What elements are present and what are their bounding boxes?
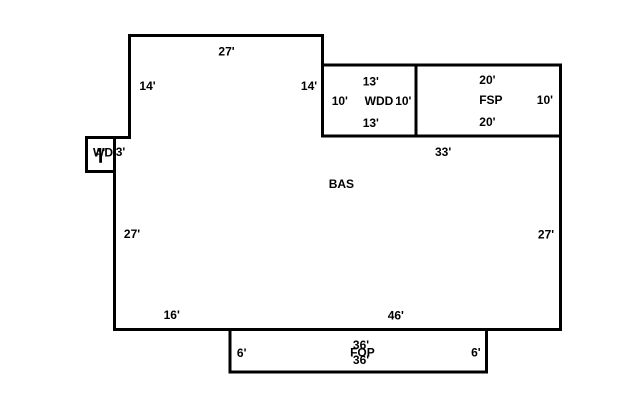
svg-text:13': 13' — [363, 116, 379, 130]
svg-text:10': 10' — [537, 93, 553, 107]
svg-text:27': 27' — [538, 228, 554, 242]
svg-text:WDD: WDD — [365, 94, 394, 108]
svg-text:27': 27' — [124, 227, 140, 241]
svg-text:FSP: FSP — [479, 93, 502, 107]
svg-text:3': 3' — [116, 145, 126, 159]
svg-text:16': 16' — [164, 308, 180, 322]
svg-text:6': 6' — [237, 346, 247, 360]
svg-text:6': 6' — [471, 346, 481, 360]
svg-text:WD: WD — [93, 145, 113, 159]
svg-text:33': 33' — [435, 145, 451, 159]
svg-text:13': 13' — [363, 74, 379, 88]
svg-text:20': 20' — [479, 115, 495, 129]
svg-text:36': 36' — [353, 353, 369, 367]
svg-text:14': 14' — [139, 79, 155, 93]
svg-text:BAS: BAS — [329, 177, 354, 191]
svg-text:10': 10' — [395, 94, 411, 108]
svg-text:14': 14' — [301, 79, 317, 93]
svg-text:46': 46' — [388, 308, 404, 322]
svg-text:20': 20' — [479, 73, 495, 87]
svg-text:27': 27' — [218, 44, 234, 58]
svg-text:10': 10' — [332, 94, 348, 108]
